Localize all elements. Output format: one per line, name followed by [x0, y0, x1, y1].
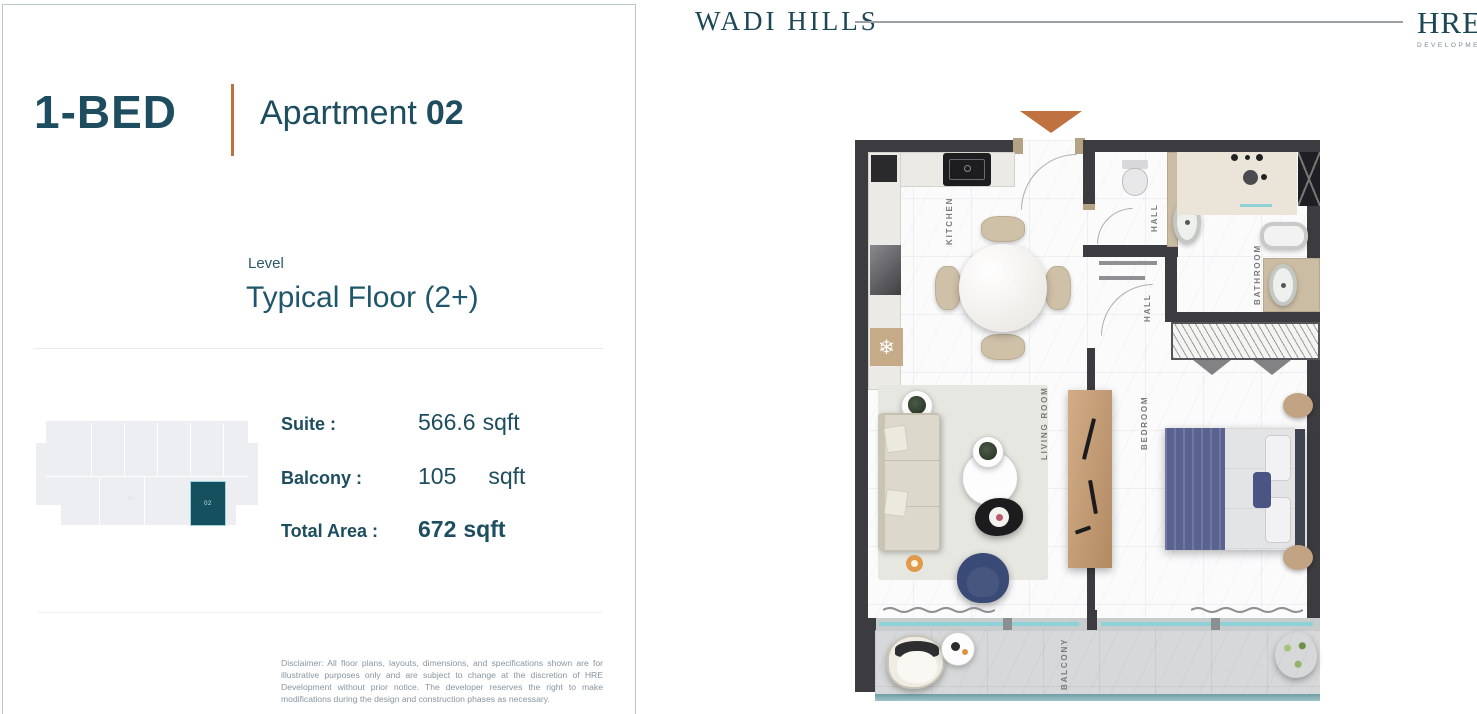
keyplan-unit-number: 02 — [204, 501, 212, 507]
bed-blanket — [1165, 428, 1225, 550]
plant-icon — [979, 442, 997, 460]
footer-divider — [38, 612, 603, 613]
sink-tap — [1281, 283, 1286, 288]
toilet — [1120, 160, 1150, 196]
snowflake-icon: ❄ — [878, 335, 895, 360]
keyplan-line — [190, 423, 191, 476]
toilet-bowl — [1122, 168, 1148, 196]
total-area-value: 672 — [418, 516, 456, 543]
armchair — [957, 553, 1009, 603]
curtain-icon — [883, 606, 995, 614]
title-divider — [231, 84, 234, 156]
sliding-door-glass — [879, 622, 1079, 626]
header-rule — [855, 21, 1403, 23]
kitchen-stove — [870, 245, 901, 295]
bed-headboard — [1295, 429, 1305, 549]
sofa-pillow — [883, 489, 908, 517]
wall-left — [855, 140, 868, 620]
keyplan-line — [124, 423, 125, 476]
keyplan-line — [91, 423, 92, 476]
room-label-kitchen: KITCHEN — [945, 197, 954, 245]
sofa-pillow — [883, 425, 908, 454]
keyplan-line — [223, 423, 224, 476]
lounge-cushion — [897, 651, 937, 683]
info-panel: 1-BED Apartment02 Level Typical Floor (2… — [2, 4, 636, 714]
wall-top-right — [1095, 140, 1320, 152]
keyplan-highlight-unit: 02 — [190, 481, 226, 526]
nightstand — [1283, 545, 1313, 570]
shower-control — [1261, 174, 1267, 180]
kitchen-corner-unit — [871, 155, 897, 182]
appliance-dot — [1256, 154, 1263, 161]
balcony-value: 105 — [418, 463, 456, 490]
apartment-title: Apartment02 — [260, 94, 464, 133]
keyplan-thumbnail: 01 02 — [36, 418, 258, 530]
dining-table — [959, 244, 1047, 332]
bathroom-sink — [1269, 264, 1297, 306]
bed — [1165, 428, 1305, 550]
balcony-area-row: Balcony : 105 sqft — [281, 463, 525, 490]
balcony-label: Balcony : — [281, 468, 418, 489]
sliding-door-glass — [1101, 622, 1313, 626]
appliance-dot — [1231, 154, 1238, 161]
sink-tap — [964, 165, 971, 172]
tv-console — [1068, 390, 1112, 568]
room-label-living-room: LIVING ROOM — [1040, 386, 1049, 460]
wardrobe-door — [1193, 360, 1231, 375]
room-label-bathroom: BATHROOM — [1253, 244, 1262, 305]
total-area-label: Total Area : — [281, 521, 418, 542]
level-value: Typical Floor (2+) — [246, 281, 479, 315]
wall-wardrobe-top — [1165, 312, 1320, 322]
room-label-balcony: BALCONY — [1060, 638, 1069, 690]
door-mullion — [1003, 618, 1012, 630]
keyplan-line — [157, 423, 158, 476]
wall-entry — [1083, 140, 1095, 204]
door-leaf — [1099, 276, 1145, 280]
kitchen-sink — [943, 153, 991, 186]
dining-chair — [981, 216, 1025, 242]
dining-chair — [935, 266, 961, 310]
balcony-wall-left — [855, 618, 876, 692]
wall-hall-bathroom — [1165, 250, 1177, 320]
balcony-plant — [1275, 632, 1317, 678]
room-label-hall-upper: HALL — [1150, 203, 1159, 232]
dining-chair — [1045, 266, 1071, 310]
suite-unit: sqft — [483, 409, 520, 436]
bathtub — [1260, 222, 1308, 250]
balcony-unit: sqft — [488, 463, 525, 490]
balcony-table — [941, 632, 975, 666]
suite-area-row: Suite : 566.6 sqft — [281, 409, 520, 436]
apartment-label: Apartment — [260, 94, 417, 132]
project-logo: WADI HILLS — [695, 6, 879, 37]
total-area-row: Total Area : 672 sqft — [281, 516, 506, 543]
wardrobe-door — [1253, 360, 1291, 375]
curtain-icon — [1191, 606, 1303, 614]
utility-area — [1177, 152, 1297, 215]
table-decor — [962, 649, 968, 655]
apartment-number: 02 — [426, 94, 464, 132]
room-label-bedroom: BEDROOM — [1140, 396, 1149, 450]
sink-tap — [1185, 220, 1190, 225]
bed-type-title: 1-BED — [34, 85, 177, 139]
keyplan-line — [46, 476, 248, 477]
dining-chair — [981, 334, 1025, 360]
wardrobe — [1171, 322, 1320, 360]
bed-cushion — [1253, 472, 1271, 508]
total-area-unit: sqft — [463, 516, 505, 543]
brochure-page: 1-BED Apartment02 Level Typical Floor (2… — [0, 0, 1477, 714]
level-label: Level — [248, 255, 284, 272]
wall-cap — [1083, 204, 1095, 210]
keyplan-unit-01: 01 — [128, 496, 135, 502]
disclaimer-text: Disclaimer: All floor plans, layouts, di… — [281, 657, 603, 705]
developer-name: HRE — [1417, 5, 1477, 41]
table-decor — [996, 514, 1003, 521]
appliance-dot — [1245, 155, 1250, 160]
shower-head — [1243, 170, 1258, 185]
balcony-divider-stub — [1087, 610, 1097, 630]
keyplan-line — [99, 477, 100, 525]
armchair-seat — [967, 567, 999, 597]
plant-icon — [908, 396, 926, 414]
nightstand — [1283, 393, 1313, 418]
fridge: ❄ — [870, 328, 903, 366]
table-decor — [951, 642, 960, 651]
developer-logo: HRE DEVELOPMENT — [1417, 5, 1477, 49]
keyplan-line — [144, 477, 145, 525]
lamp-center — [911, 560, 918, 567]
wall-top-left — [855, 140, 1015, 152]
room-label-hall-lower: HALL — [1143, 293, 1152, 322]
balcony-railing — [875, 694, 1320, 701]
floor-lamp — [906, 555, 923, 572]
suite-value: 566.6 — [418, 409, 476, 436]
door-leaf — [1099, 261, 1157, 265]
developer-subtitle: DEVELOPMENT — [1417, 42, 1477, 49]
shower-glass — [1240, 204, 1272, 207]
section-divider — [33, 348, 603, 349]
suite-label: Suite : — [281, 414, 418, 435]
entrance-arrow-icon — [1020, 111, 1082, 133]
floor-plan: ❄ — [855, 108, 1320, 708]
wall-wc-bottom — [1083, 245, 1178, 257]
service-shaft — [1298, 152, 1320, 206]
door-mullion — [1211, 618, 1220, 630]
